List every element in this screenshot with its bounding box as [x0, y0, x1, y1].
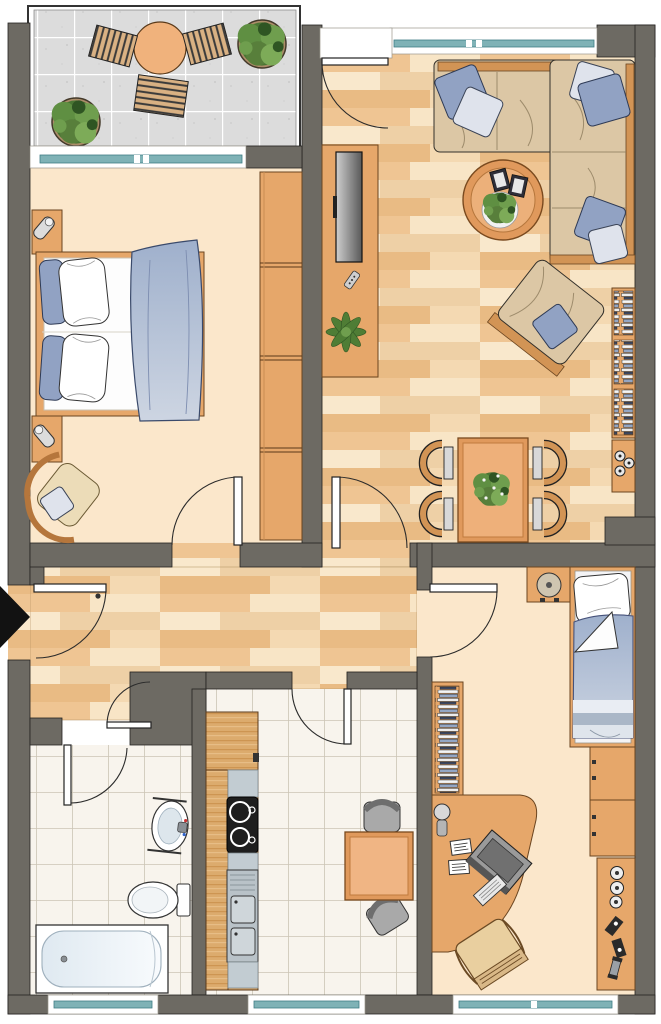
floor-plan — [0, 0, 661, 1024]
wall-mid-a — [30, 543, 172, 567]
kids-nightstand — [527, 567, 572, 602]
kids-bookshelf — [432, 682, 463, 797]
pillow-white-2 — [58, 333, 110, 403]
duvet — [131, 240, 203, 421]
coffee-table-plant — [482, 192, 518, 228]
wall-kitchen-top-left — [206, 672, 292, 689]
wall-kids-left-upper — [417, 543, 432, 590]
kitchen-window — [248, 995, 365, 1014]
balcony-door-sill — [320, 28, 392, 58]
wall-left-lower — [8, 660, 30, 1014]
kitchen-counter — [206, 712, 259, 990]
balcony-bench — [134, 75, 189, 118]
pillow-white-1 — [58, 257, 111, 327]
tv-stand — [333, 196, 337, 218]
counter-handle — [253, 753, 259, 762]
toy-shelf — [597, 858, 635, 990]
floor-plan-drawing — [0, 0, 661, 1024]
balcony-plant-right — [238, 20, 286, 68]
faucet — [177, 822, 187, 833]
wall-kids-left-lower — [417, 657, 432, 995]
bathroom-window — [48, 995, 158, 1014]
wall-bath-kitchen — [192, 689, 206, 995]
bistro-table — [134, 22, 186, 74]
drain — [61, 956, 67, 962]
coffee-table — [463, 160, 543, 240]
wall-mid-c — [410, 543, 655, 567]
living-room-window — [390, 28, 597, 54]
kitchen-chair-top — [364, 802, 400, 832]
wall-bath-top-left — [30, 718, 62, 745]
kitchen-sink — [227, 870, 258, 962]
bedroom-window — [30, 146, 246, 168]
hifi-cabinet — [612, 440, 635, 492]
door-knob — [95, 593, 100, 598]
paper — [450, 839, 472, 856]
wall-right-pier — [605, 517, 655, 545]
tv-sideboard — [322, 145, 378, 377]
sideboard-plant — [326, 312, 366, 352]
bedroom-door-threshold — [172, 543, 240, 567]
double-bed — [36, 240, 204, 421]
kids-dresser — [590, 747, 635, 856]
wall-mid-b — [240, 543, 322, 567]
sofa-cushion-light-3 — [587, 223, 628, 264]
hall-rail — [107, 722, 151, 728]
wall-bedroom-living — [302, 25, 322, 567]
kids-door-threshold — [417, 590, 432, 657]
tv — [336, 152, 362, 262]
toilet — [128, 882, 190, 918]
bathtub — [36, 925, 168, 993]
single-bed — [570, 567, 635, 747]
wall-bedroom-window-pier — [246, 146, 302, 168]
cooktop — [227, 797, 258, 853]
kids-room-window — [453, 995, 618, 1014]
wall-kitchen-top-right — [347, 672, 417, 689]
balcony-plant-left — [52, 98, 100, 146]
bookshelf — [612, 288, 635, 438]
